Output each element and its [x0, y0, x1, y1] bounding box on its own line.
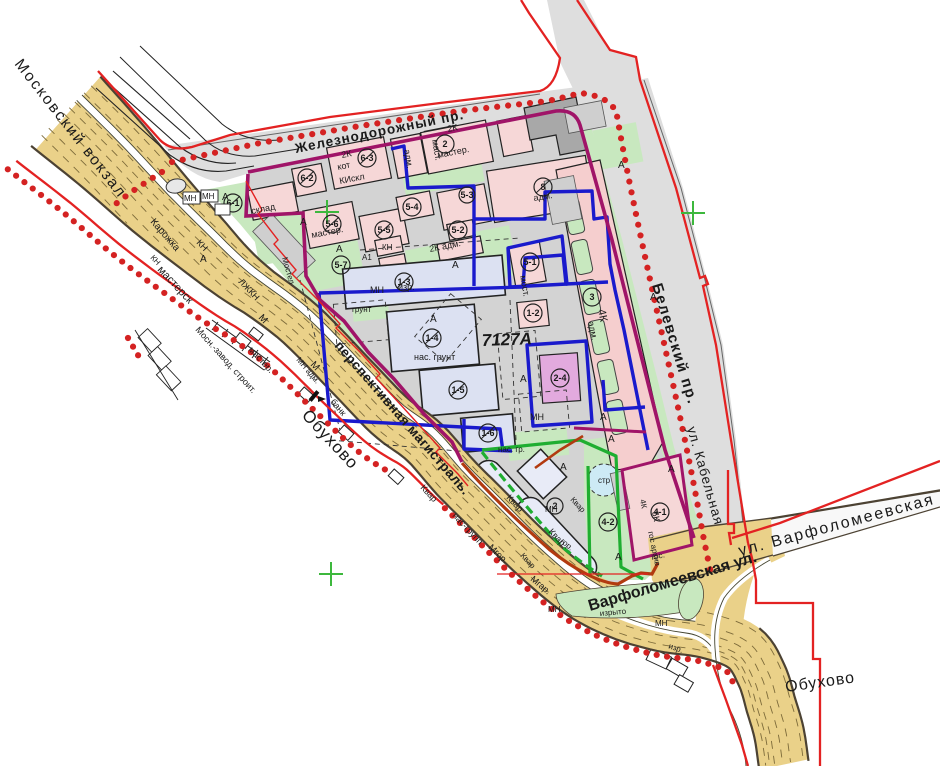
svg-text:МН: МН	[548, 605, 561, 614]
svg-text:5-3: 5-3	[460, 190, 473, 200]
svg-text:А: А	[608, 434, 615, 445]
svg-text:5-4: 5-4	[405, 202, 418, 212]
svg-text:4-2: 4-2	[601, 517, 614, 527]
svg-text:А: А	[300, 217, 307, 228]
svg-text:3: 3	[589, 292, 594, 302]
svg-text:грунт: грунт	[352, 305, 372, 314]
svg-text:МН: МН	[545, 505, 558, 514]
svg-text:изр.: изр.	[398, 282, 415, 292]
svg-text:А1: А1	[362, 253, 372, 262]
svg-text:МН: МН	[370, 285, 384, 295]
svg-text:2-4: 2-4	[553, 373, 566, 383]
svg-text:А: А	[336, 244, 343, 255]
svg-text:1-2: 1-2	[526, 308, 539, 318]
svg-text:5-7: 5-7	[334, 260, 347, 270]
svg-text:А: А	[600, 412, 607, 423]
svg-text:А: А	[430, 314, 437, 325]
svg-text:7127А: 7127А	[481, 329, 532, 350]
svg-text:А: А	[618, 160, 625, 171]
svg-text:МН: МН	[202, 192, 215, 201]
svg-text:стр: стр	[598, 476, 611, 485]
svg-text:КН: КН	[382, 243, 393, 252]
svg-text:А: А	[222, 192, 229, 203]
svg-text:МН: МН	[655, 619, 668, 628]
svg-text:нас. грунт: нас. грунт	[414, 352, 455, 362]
svg-text:А: А	[200, 254, 207, 265]
svg-text:нас. гр.: нас. гр.	[498, 445, 525, 454]
svg-text:А: А	[615, 552, 622, 563]
svg-text:5-1: 5-1	[523, 257, 536, 267]
svg-text:А: А	[452, 260, 459, 271]
svg-text:5-2: 5-2	[451, 225, 464, 235]
svg-text:МН: МН	[530, 412, 544, 422]
svg-text:МН: МН	[184, 194, 197, 203]
svg-text:А: А	[668, 464, 675, 475]
svg-text:А: А	[560, 462, 567, 473]
svg-text:А: А	[650, 292, 657, 303]
svg-text:А: А	[520, 374, 527, 385]
